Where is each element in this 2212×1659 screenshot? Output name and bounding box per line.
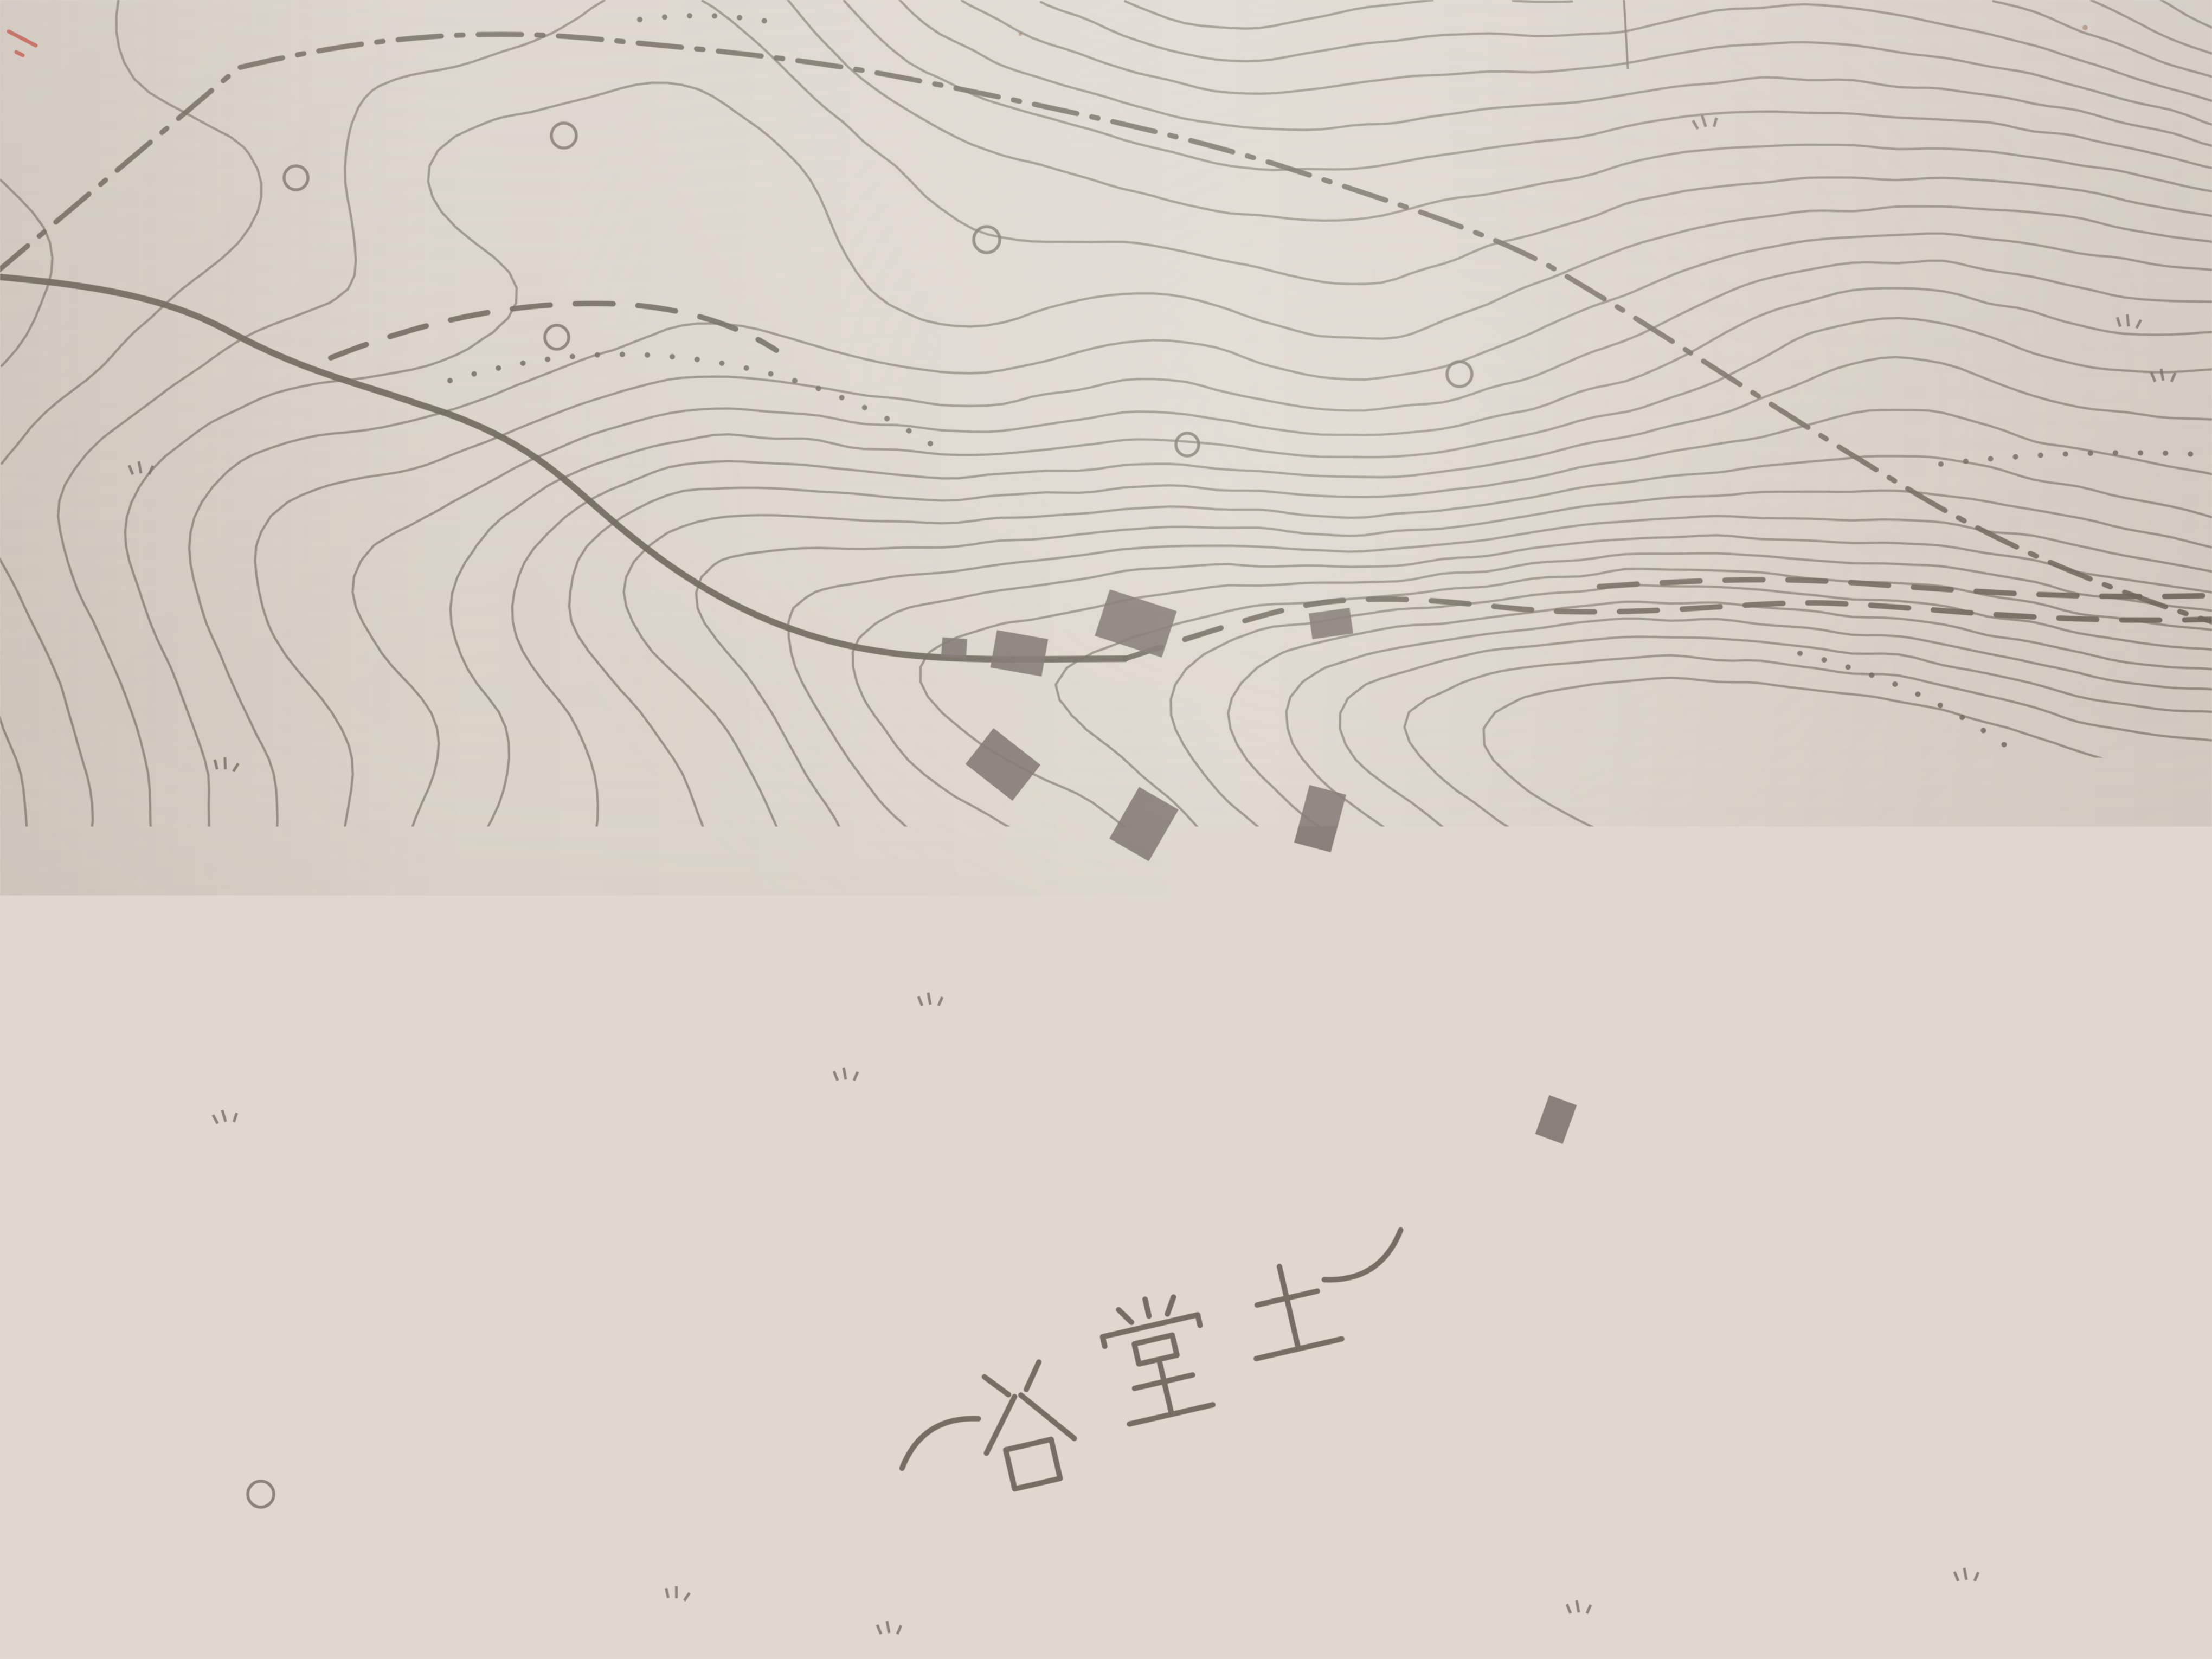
paper-speck xyxy=(178,827,183,832)
paper-speck xyxy=(1019,33,1022,36)
paper-speck xyxy=(1835,411,1841,417)
paper-speck xyxy=(76,611,82,616)
paper-speck xyxy=(132,1226,136,1230)
paper-background xyxy=(0,0,2212,1659)
paper-speck xyxy=(1590,1534,1594,1538)
paper-speck xyxy=(2180,1032,2185,1037)
paper-speck xyxy=(172,1359,178,1365)
plot-number-label: 19 xyxy=(1284,643,1462,788)
paper-speck xyxy=(1975,1337,1981,1343)
map-photo-stage: 小 小 19 (谷堂土) xyxy=(0,0,2212,1659)
paper-speck xyxy=(731,1328,737,1334)
paper-speck xyxy=(2082,25,2088,30)
paper-speck xyxy=(105,1293,107,1295)
paper-speck xyxy=(1674,619,1677,622)
paper-speck xyxy=(1155,1220,1158,1224)
paper-speck xyxy=(1673,860,1676,863)
paper-speck xyxy=(1386,1311,1390,1316)
map-photo: 小 小 19 (谷堂土) xyxy=(0,0,2212,1659)
paper-speck xyxy=(2021,1410,2027,1416)
paper-speck xyxy=(2073,237,2076,240)
paper-speck xyxy=(1443,1501,1446,1503)
paper-speck xyxy=(74,1520,80,1526)
building xyxy=(941,637,967,658)
paper-speck xyxy=(226,1068,230,1072)
paper-speck xyxy=(2008,1246,2012,1250)
